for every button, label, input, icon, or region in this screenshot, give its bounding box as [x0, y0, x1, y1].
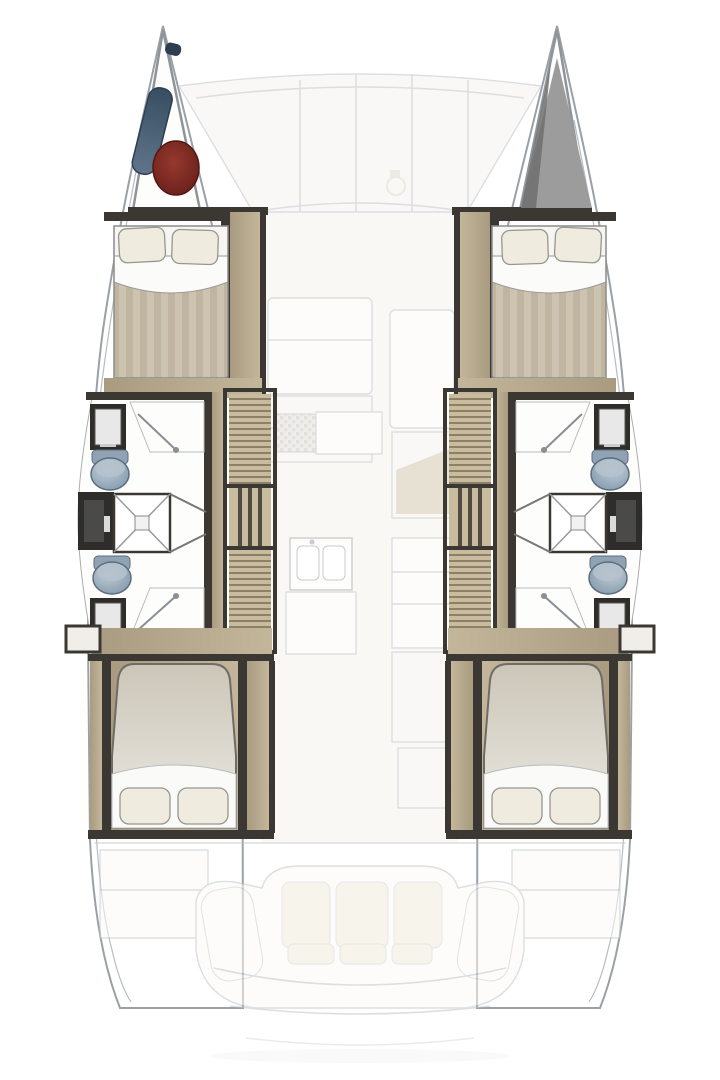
- cabin-side-wall: [102, 661, 111, 833]
- outboard-locker: [66, 626, 100, 652]
- toilet: [91, 450, 129, 490]
- aft-berth: [112, 664, 236, 828]
- stair-flight-forward: [229, 394, 271, 486]
- companionway-stairs: [225, 390, 275, 652]
- galley-unit: [286, 592, 356, 654]
- catamaran-floorplan: [0, 0, 720, 1080]
- floorplan-canvas: [0, 0, 720, 1080]
- shower-drain: [135, 516, 149, 530]
- cabin-aft-wall: [88, 830, 274, 839]
- sofa-back-cushion: [336, 882, 388, 948]
- aft-cabin: [66, 626, 275, 839]
- head-compartments: [78, 392, 212, 648]
- cockpit-bench-starboard: [512, 850, 620, 938]
- foredeck-panels: [179, 74, 541, 212]
- salon-settee: [268, 298, 372, 394]
- starboard-step-unit: [398, 748, 448, 808]
- sofa-seat-cushion: [288, 944, 334, 964]
- cabin-entry-floor: [92, 628, 272, 656]
- sofa-seat-cushion: [392, 944, 432, 964]
- forward-berth: [114, 226, 228, 378]
- galley-sink-island: [290, 538, 352, 590]
- toilet: [93, 556, 131, 594]
- cockpit-sofa: [196, 866, 524, 1008]
- sofa-back-cushion: [282, 882, 330, 948]
- pillow: [118, 227, 166, 263]
- galley-counter: [316, 412, 382, 454]
- cabin-side-wall: [238, 661, 247, 833]
- galley-stove: [276, 414, 316, 452]
- buoy-red: [153, 141, 199, 195]
- sofa-seat-cushion: [340, 944, 386, 964]
- cabin-front-wall: [104, 212, 224, 221]
- cabin-front-wall: [88, 654, 274, 661]
- starboard-locker-unit: [392, 652, 454, 742]
- pillow: [178, 788, 228, 824]
- pillow: [171, 229, 218, 265]
- pillow: [120, 788, 170, 824]
- sink-unit: [90, 404, 126, 450]
- cockpit-bench-port: [100, 850, 208, 938]
- transom-step-line: [246, 1038, 474, 1045]
- sofa-back-cushion: [394, 882, 442, 948]
- shadow: [210, 1049, 510, 1063]
